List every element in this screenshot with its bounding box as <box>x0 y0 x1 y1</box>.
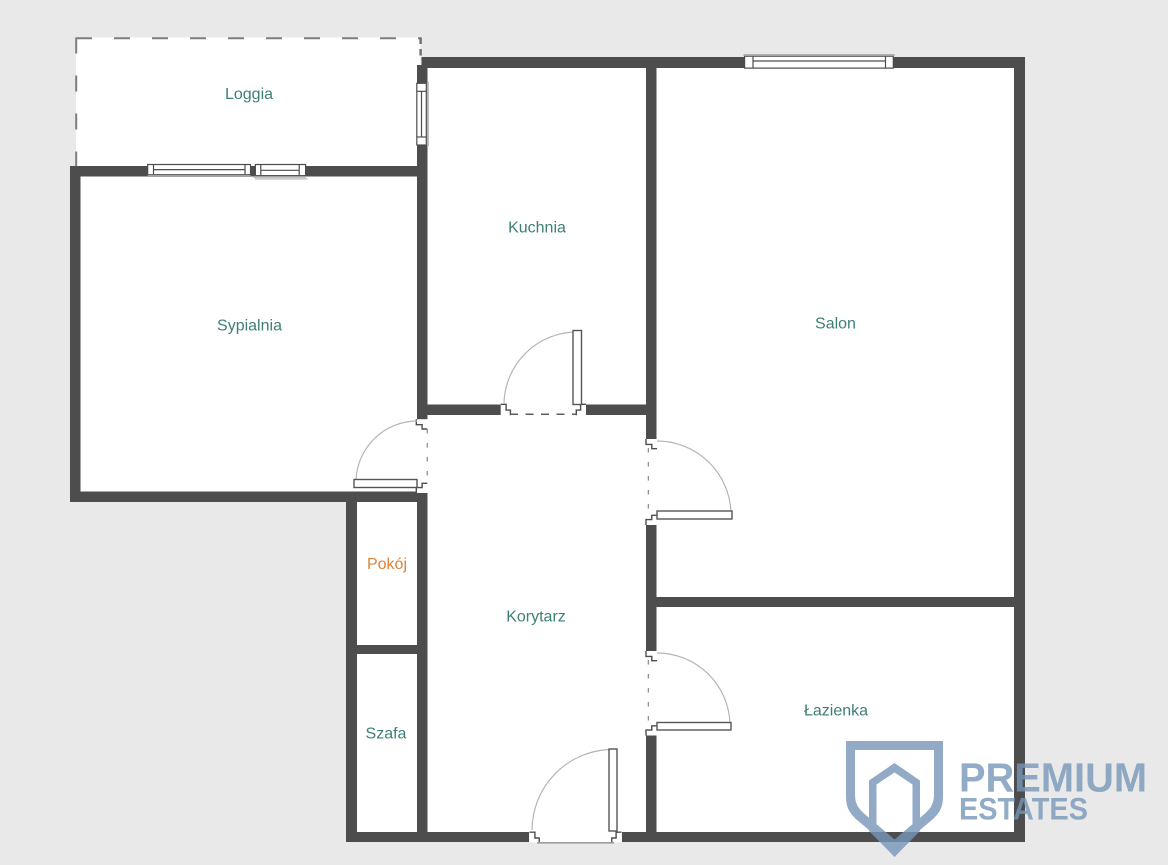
svg-text:ESTATES: ESTATES <box>959 791 1088 827</box>
svg-text:Kuchnia: Kuchnia <box>508 220 566 237</box>
svg-text:Pokój: Pokój <box>367 556 407 573</box>
svg-text:Łazienka: Łazienka <box>804 703 868 720</box>
svg-text:Salon: Salon <box>815 316 856 333</box>
svg-text:Loggia: Loggia <box>225 86 273 103</box>
svg-text:Korytarz: Korytarz <box>506 609 566 626</box>
svg-text:Szafa: Szafa <box>366 726 407 743</box>
svg-text:Sypialnia: Sypialnia <box>217 318 282 335</box>
